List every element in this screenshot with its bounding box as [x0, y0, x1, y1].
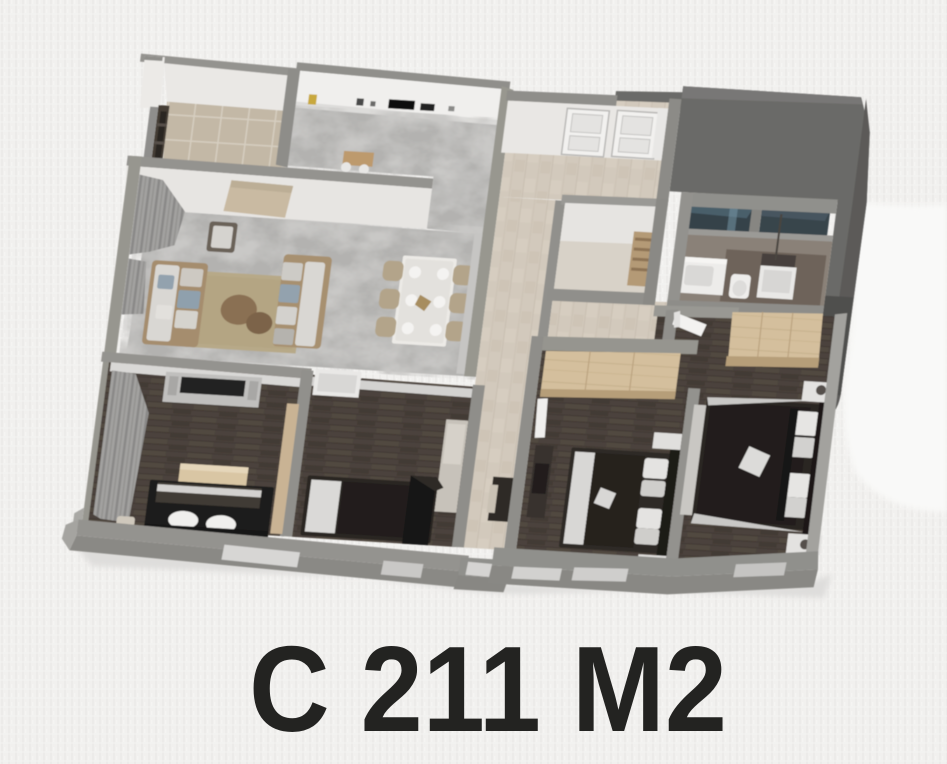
svg-text:C 211 M2: C 211 M2	[249, 621, 727, 757]
